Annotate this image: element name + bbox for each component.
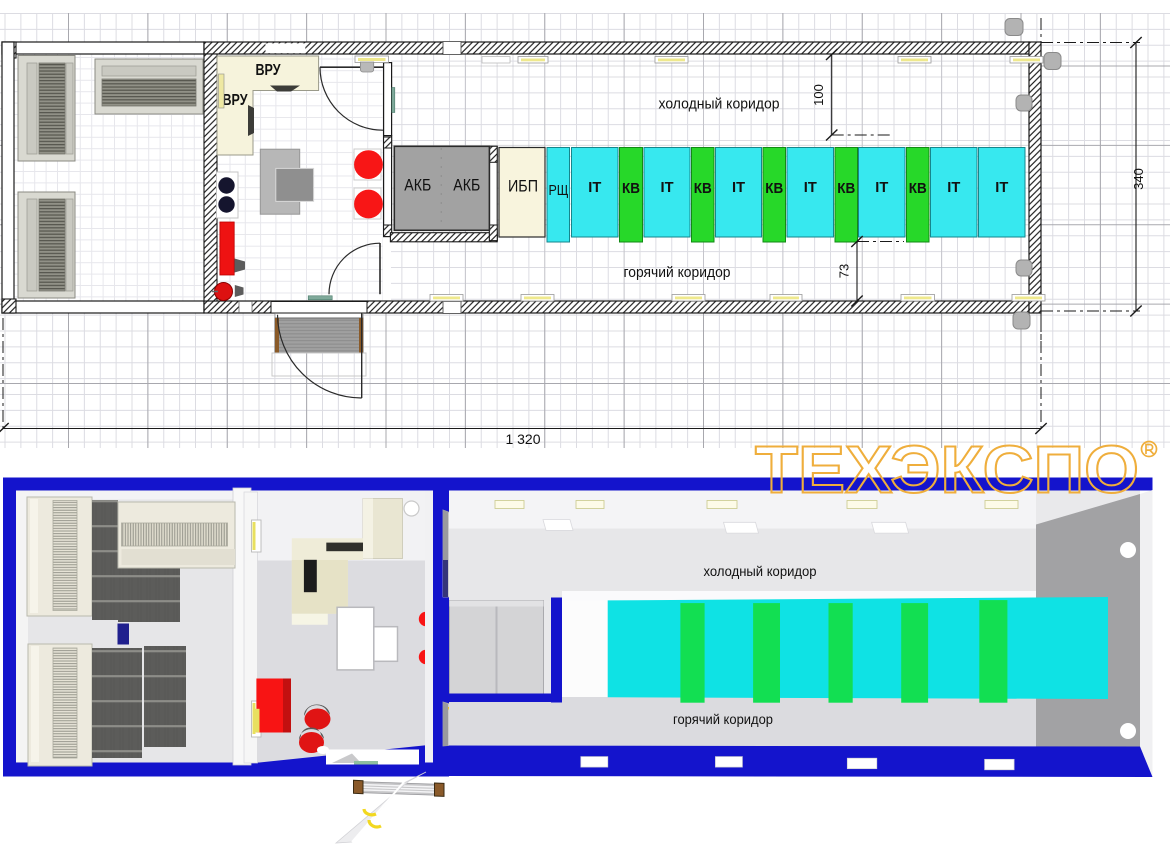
- svg-text:ВРУ: ВРУ: [223, 92, 249, 109]
- svg-text:РЩ: РЩ: [549, 182, 569, 199]
- svg-text:АКБ: АКБ: [404, 176, 431, 195]
- svg-text:КВ: КВ: [622, 181, 640, 197]
- svg-text:IT: IT: [875, 180, 888, 196]
- svg-text:IT: IT: [732, 180, 745, 196]
- svg-text:IT: IT: [995, 180, 1008, 196]
- svg-text:КВ: КВ: [694, 181, 712, 197]
- svg-text:1 320: 1 320: [505, 431, 540, 447]
- svg-text:горячий коридор: горячий коридор: [673, 711, 773, 727]
- svg-text:ИБП: ИБП: [508, 177, 538, 196]
- svg-text:ТЕХЭКСПО: ТЕХЭКСПО: [755, 433, 1139, 508]
- svg-text:АКБ: АКБ: [453, 176, 480, 195]
- svg-text:100: 100: [811, 84, 826, 106]
- svg-text:73: 73: [837, 264, 852, 278]
- svg-text:холодный коридор: холодный коридор: [704, 563, 817, 579]
- svg-text:340: 340: [1131, 168, 1146, 190]
- svg-text:IT: IT: [661, 180, 674, 196]
- svg-text:IT: IT: [588, 180, 601, 196]
- svg-text:КВ: КВ: [765, 181, 783, 197]
- svg-text:холодный коридор: холодный коридор: [659, 97, 780, 113]
- svg-text:КВ: КВ: [909, 181, 927, 197]
- svg-text:IT: IT: [947, 180, 960, 196]
- svg-text:КВ: КВ: [837, 181, 855, 197]
- svg-text:горячий коридор: горячий коридор: [624, 265, 731, 281]
- svg-text:IT: IT: [804, 180, 817, 196]
- svg-text:ВРУ: ВРУ: [256, 62, 282, 79]
